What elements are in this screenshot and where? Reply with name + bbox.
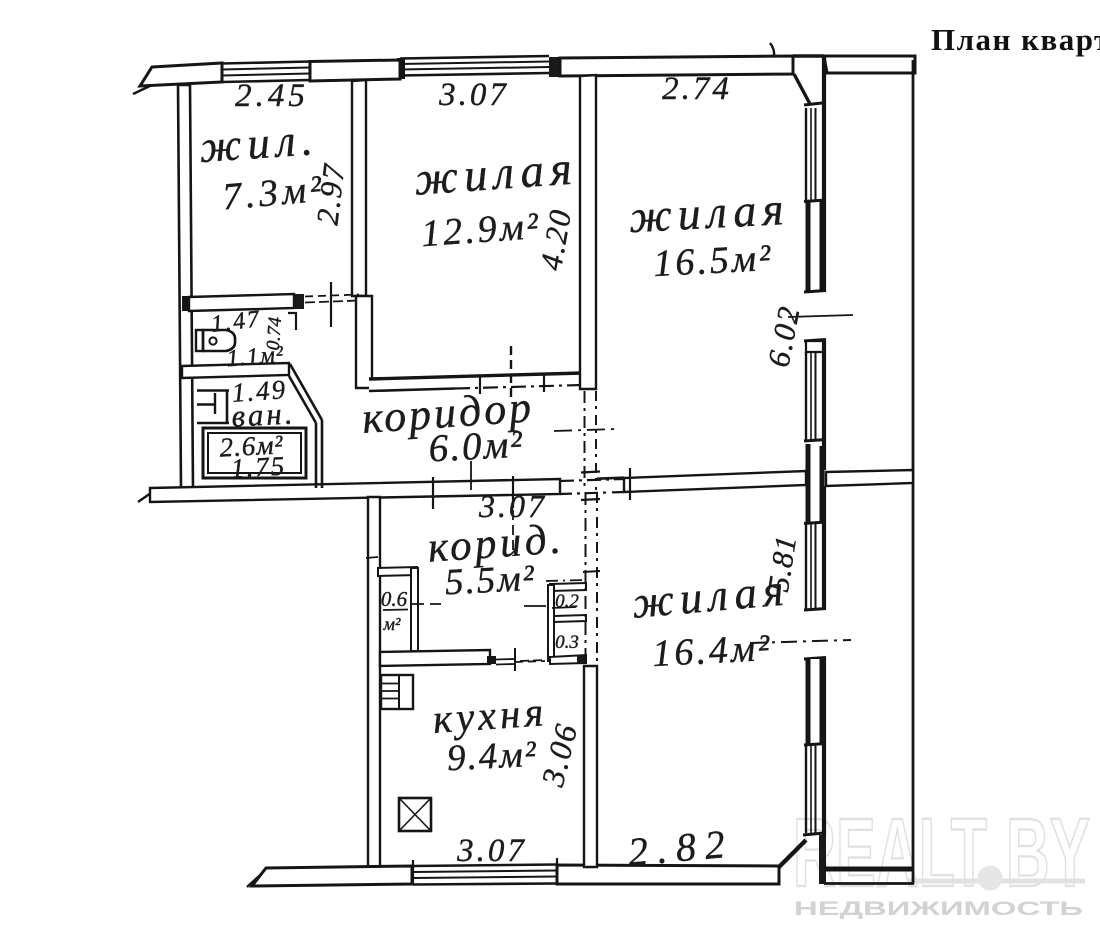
svg-text:0.6: 0.6 bbox=[381, 587, 408, 611]
svg-text:12.9м²: 12.9м² bbox=[420, 205, 543, 255]
svg-text:6.0м²: 6.0м² bbox=[428, 423, 525, 471]
svg-text:2.74: 2.74 bbox=[662, 71, 732, 107]
svg-text:2.45: 2.45 bbox=[235, 78, 309, 114]
svg-text:5.5м²: 5.5м² bbox=[444, 558, 537, 604]
svg-text:3.07: 3.07 bbox=[438, 77, 509, 113]
svg-text:0.3: 0.3 bbox=[555, 632, 579, 653]
svg-text:BY: BY bbox=[1006, 798, 1090, 907]
svg-text:жил.: жил. bbox=[198, 114, 320, 172]
svg-text:1.1м²: 1.1м² bbox=[226, 342, 286, 373]
svg-text:2.82: 2.82 bbox=[626, 821, 736, 875]
svg-text:0.2: 0.2 bbox=[555, 591, 579, 612]
svg-text:1.75: 1.75 bbox=[230, 451, 287, 484]
svg-text:м²: м² bbox=[383, 614, 401, 634]
svg-text:9.4м²: 9.4м² bbox=[446, 734, 539, 780]
svg-text:жилая: жилая bbox=[628, 183, 791, 242]
svg-text:План квартиры: План квартиры bbox=[931, 22, 1100, 57]
svg-text:16.4м²: 16.4м² bbox=[651, 627, 773, 675]
svg-text:16.5м²: 16.5м² bbox=[652, 237, 774, 285]
svg-text:НЕДВИЖИМОСТЬ: НЕДВИЖИМОСТЬ bbox=[794, 899, 1083, 920]
svg-text:3.07: 3.07 bbox=[456, 833, 527, 869]
svg-text:ван.: ван. bbox=[231, 395, 297, 433]
